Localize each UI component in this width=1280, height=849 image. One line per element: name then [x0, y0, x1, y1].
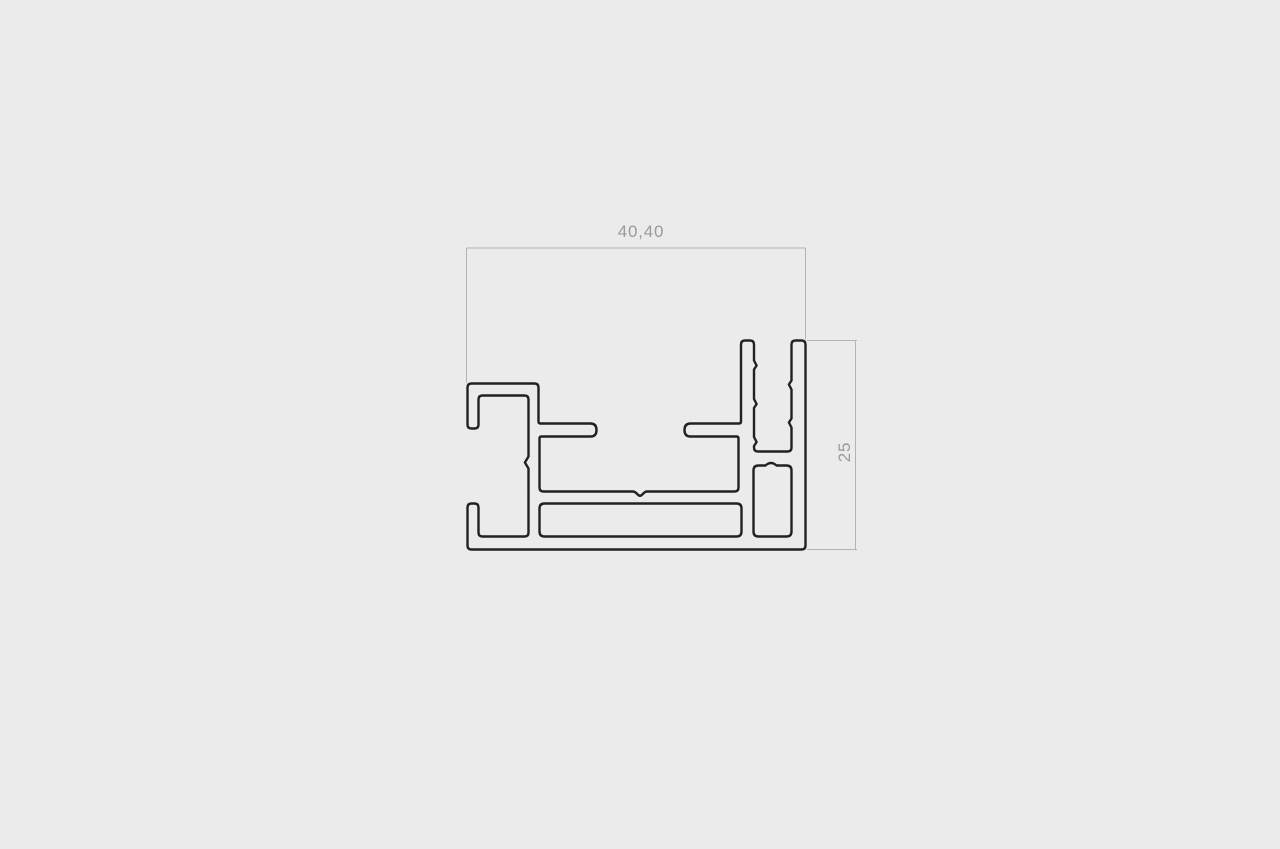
height-dimension-label: 25 — [835, 442, 854, 463]
drawing-stage: 40,40 25 — [0, 0, 1280, 849]
profile-outer-contour — [468, 341, 806, 550]
width-dimension-label: 40,40 — [618, 222, 665, 241]
technical-drawing: 40,40 25 — [0, 0, 1280, 849]
profile-bottom-chamber-cavity — [540, 504, 742, 537]
profile-side-chamber-cavity — [754, 463, 792, 536]
profile-outline-group — [468, 341, 806, 550]
